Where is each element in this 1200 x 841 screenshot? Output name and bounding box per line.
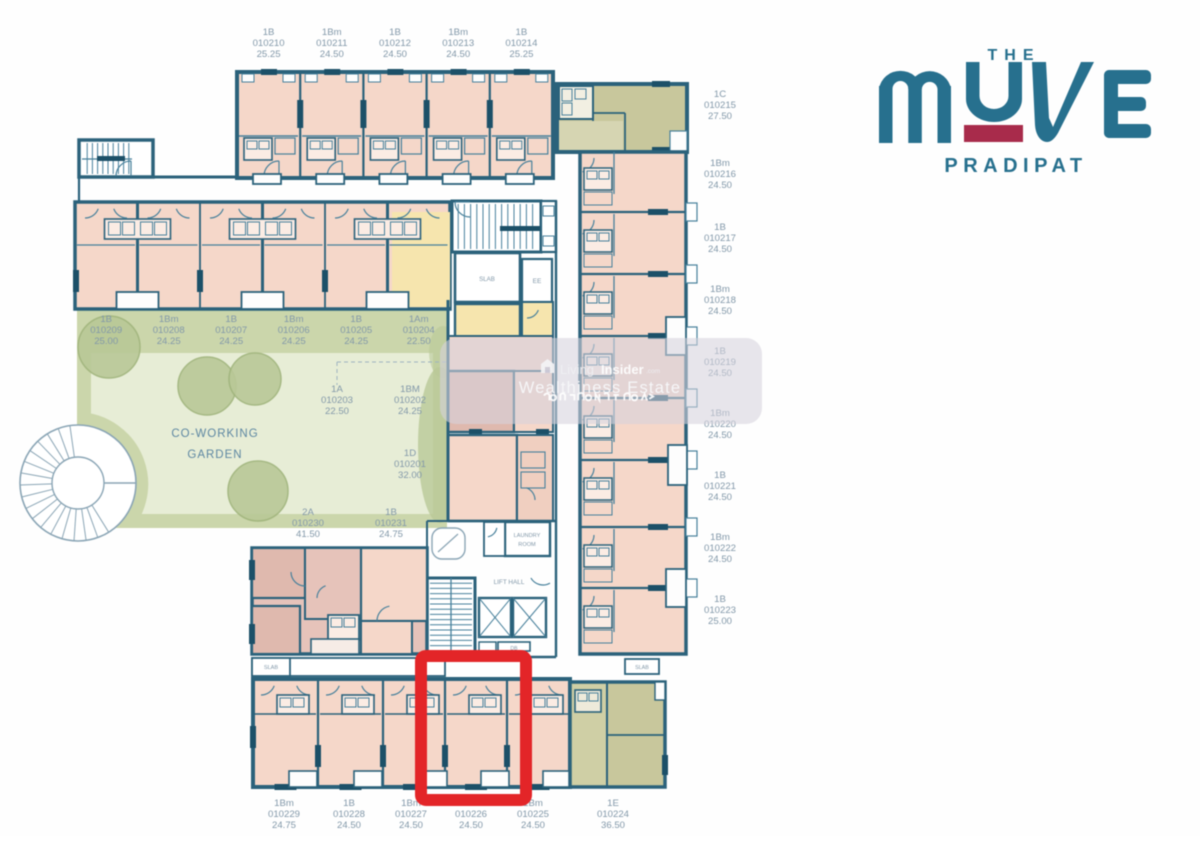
svg-text:Living: Living <box>560 362 594 377</box>
svg-text:010202: 010202 <box>394 395 426 406</box>
svg-text:010204: 010204 <box>403 325 436 336</box>
svg-text:24.50: 24.50 <box>446 49 470 60</box>
svg-text:SLAB: SLAB <box>635 665 649 671</box>
svg-text:24.50: 24.50 <box>521 820 545 831</box>
svg-text:1A: 1A <box>331 384 343 395</box>
svg-text:1Bm: 1Bm <box>710 532 730 543</box>
svg-text:010203: 010203 <box>321 395 353 406</box>
svg-text:24.25: 24.25 <box>219 336 243 347</box>
svg-text:1Bm: 1Bm <box>322 27 342 38</box>
svg-text:1B: 1B <box>516 27 528 38</box>
svg-text:GARDEN: GARDEN <box>187 449 242 461</box>
svg-text:010207: 010207 <box>215 325 247 336</box>
svg-text:LIFT HALL: LIFT HALL <box>494 579 525 586</box>
svg-text:25.25: 25.25 <box>509 49 533 60</box>
svg-text:1C: 1C <box>714 89 726 100</box>
svg-text:SLAB: SLAB <box>479 276 495 283</box>
svg-text:25.00: 25.00 <box>94 336 118 347</box>
svg-text:1Am: 1Am <box>409 314 429 325</box>
svg-text:22.50: 22.50 <box>407 336 431 347</box>
svg-text:24.25: 24.25 <box>157 336 181 347</box>
svg-text:LAUNDRY: LAUNDRY <box>514 533 541 539</box>
svg-text:24.50: 24.50 <box>708 430 732 441</box>
svg-text:25.25: 25.25 <box>257 49 281 60</box>
svg-text:010222: 010222 <box>704 543 736 554</box>
svg-text:1B: 1B <box>714 594 726 605</box>
svg-text:24.50: 24.50 <box>459 820 483 831</box>
svg-text:24.50: 24.50 <box>708 244 732 255</box>
svg-text:24.50: 24.50 <box>383 49 407 60</box>
svg-text:1Bm: 1Bm <box>284 314 304 325</box>
svg-text:24.75: 24.75 <box>379 529 403 540</box>
svg-text:24.50: 24.50 <box>708 492 732 503</box>
svg-text:1Bm: 1Bm <box>448 27 468 38</box>
svg-text:010206: 010206 <box>278 325 310 336</box>
svg-text:010209: 010209 <box>90 325 122 336</box>
svg-text:010224: 010224 <box>597 809 630 820</box>
svg-text:010227: 010227 <box>395 809 427 820</box>
svg-text:ROOM: ROOM <box>518 542 536 548</box>
svg-text:010212: 010212 <box>379 38 411 49</box>
svg-text:24.75: 24.75 <box>272 820 296 831</box>
svg-text:.com: .com <box>646 368 660 375</box>
svg-text:1D: 1D <box>404 448 416 459</box>
svg-text:24.50: 24.50 <box>337 820 361 831</box>
svg-text:010201: 010201 <box>394 459 426 470</box>
svg-text:010218: 010218 <box>704 295 736 306</box>
svg-text:010230: 010230 <box>292 518 324 529</box>
svg-text:010221: 010221 <box>704 481 736 492</box>
svg-text:010214: 010214 <box>505 38 538 49</box>
svg-text:2A: 2A <box>302 507 314 518</box>
svg-text:41.50: 41.50 <box>296 529 320 540</box>
svg-text:SLAB: SLAB <box>264 665 279 671</box>
svg-text:EE: EE <box>533 278 542 285</box>
svg-text:PRADIPAT: PRADIPAT <box>944 155 1087 177</box>
svg-text:1B: 1B <box>100 314 112 325</box>
svg-text:1B: 1B <box>263 27 275 38</box>
svg-text:25.00: 25.00 <box>708 616 732 627</box>
svg-text:010226: 010226 <box>455 809 487 820</box>
svg-text:1B: 1B <box>350 314 362 325</box>
svg-text:010210: 010210 <box>253 38 285 49</box>
svg-text:24.25: 24.25 <box>282 336 306 347</box>
svg-text:010228: 010228 <box>333 809 365 820</box>
svg-text:24.50: 24.50 <box>708 180 732 191</box>
svg-text:010229: 010229 <box>268 809 300 820</box>
svg-text:Insider: Insider <box>601 362 644 377</box>
svg-text:24.50: 24.50 <box>708 554 732 565</box>
svg-text:010216: 010216 <box>704 169 736 180</box>
svg-text:010205: 010205 <box>340 325 372 336</box>
svg-text:1Bm: 1Bm <box>710 158 730 169</box>
svg-text:1Bm: 1Bm <box>710 284 730 295</box>
svg-text:24.50: 24.50 <box>708 306 732 317</box>
svg-text:27.50: 27.50 <box>708 111 732 122</box>
svg-text:1B: 1B <box>714 222 726 233</box>
svg-text:1Bm: 1Bm <box>274 798 294 809</box>
svg-text:36.50: 36.50 <box>601 820 625 831</box>
svg-text:1B: 1B <box>385 507 397 518</box>
svg-text:1B: 1B <box>389 27 401 38</box>
svg-text:010208: 010208 <box>153 325 185 336</box>
svg-text:24.50: 24.50 <box>399 820 423 831</box>
svg-text:010211: 010211 <box>316 38 347 49</box>
svg-text:010225: 010225 <box>517 809 549 820</box>
svg-text:1E: 1E <box>607 798 619 809</box>
svg-text:THE: THE <box>988 47 1041 64</box>
svg-text:010223: 010223 <box>704 605 736 616</box>
svg-text:010217: 010217 <box>704 233 736 244</box>
svg-text:24.25: 24.25 <box>398 406 422 417</box>
svg-text:22.50: 22.50 <box>325 406 349 417</box>
svg-text:010215: 010215 <box>704 100 736 111</box>
svg-text:1BM: 1BM <box>400 384 420 395</box>
svg-text:32.00: 32.00 <box>398 470 422 481</box>
svg-text:1B: 1B <box>343 798 355 809</box>
svg-text:010231: 010231 <box>375 518 407 529</box>
svg-text:1B: 1B <box>714 470 726 481</box>
svg-text:010213: 010213 <box>442 38 474 49</box>
svg-text:24.25: 24.25 <box>344 336 368 347</box>
svg-text:1Bm: 1Bm <box>159 314 179 325</box>
svg-text:1B: 1B <box>225 314 237 325</box>
svg-text:CO-WORKING: CO-WORKING <box>171 428 258 440</box>
svg-text:24.50: 24.50 <box>320 49 344 60</box>
